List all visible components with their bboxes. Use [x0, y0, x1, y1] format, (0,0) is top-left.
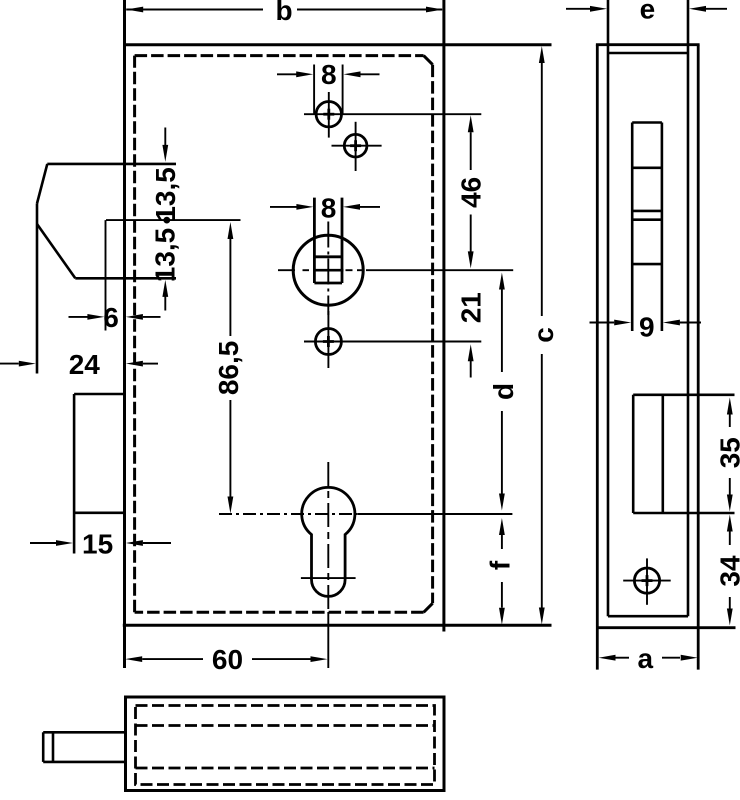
svg-text:9: 9 — [639, 312, 655, 343]
svg-text:6: 6 — [103, 302, 119, 333]
svg-text:c: c — [528, 327, 559, 343]
svg-text:13,5: 13,5 — [149, 228, 180, 283]
svg-text:a: a — [638, 643, 654, 674]
svg-text:8: 8 — [321, 193, 337, 224]
svg-text:21: 21 — [455, 292, 486, 323]
svg-text:d: d — [488, 383, 519, 400]
svg-text:46: 46 — [455, 177, 486, 208]
svg-text:15: 15 — [82, 529, 113, 560]
svg-text:35: 35 — [714, 437, 740, 468]
svg-text:86,5: 86,5 — [213, 341, 244, 396]
svg-text:8: 8 — [321, 59, 337, 90]
svg-text:b: b — [275, 0, 292, 26]
svg-text:24: 24 — [69, 349, 101, 380]
svg-text:34: 34 — [714, 555, 740, 587]
svg-text:60: 60 — [212, 644, 243, 675]
svg-text:13,5: 13,5 — [150, 167, 181, 222]
svg-text:e: e — [640, 0, 656, 25]
svg-text:f: f — [485, 560, 516, 570]
